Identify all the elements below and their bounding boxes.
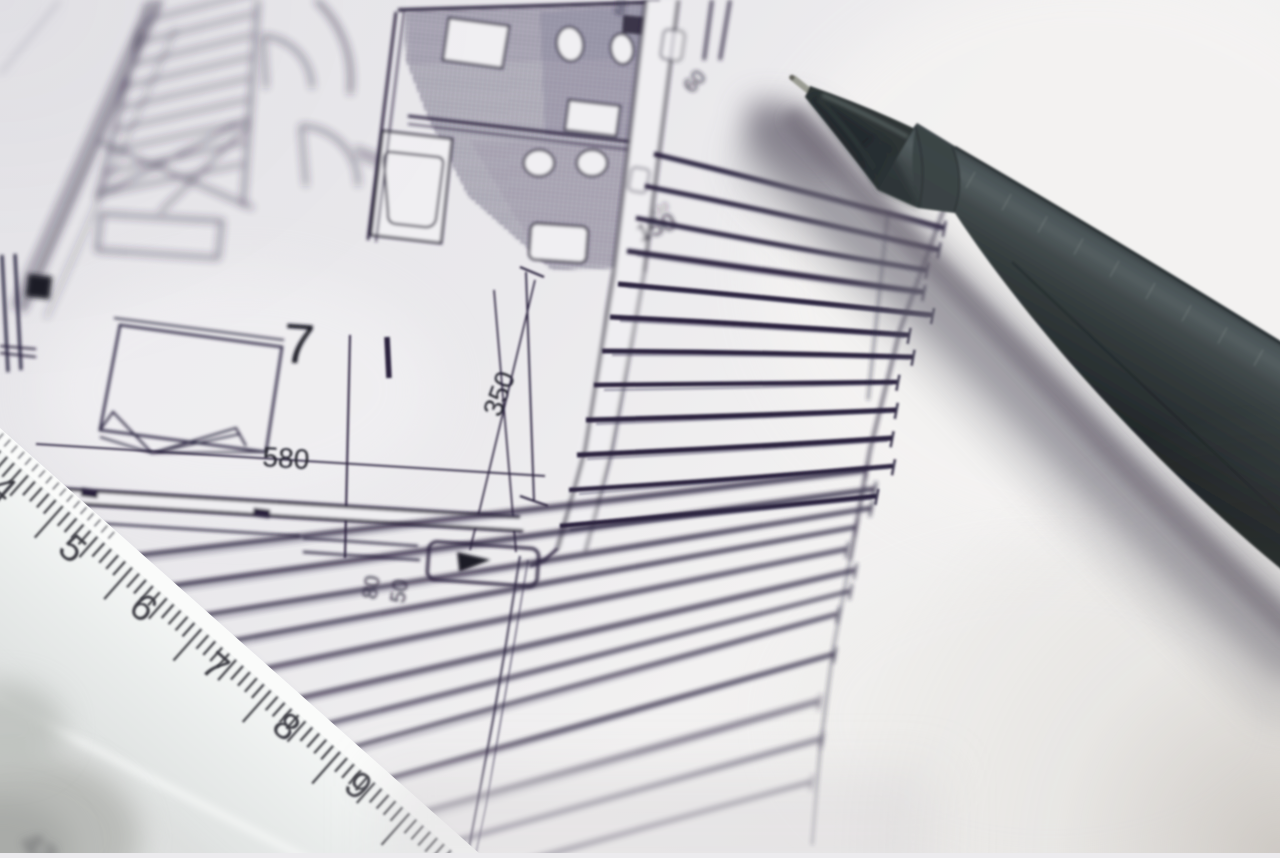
svg-text:60: 60 [611,0,631,17]
svg-text:580: 580 [262,441,311,475]
